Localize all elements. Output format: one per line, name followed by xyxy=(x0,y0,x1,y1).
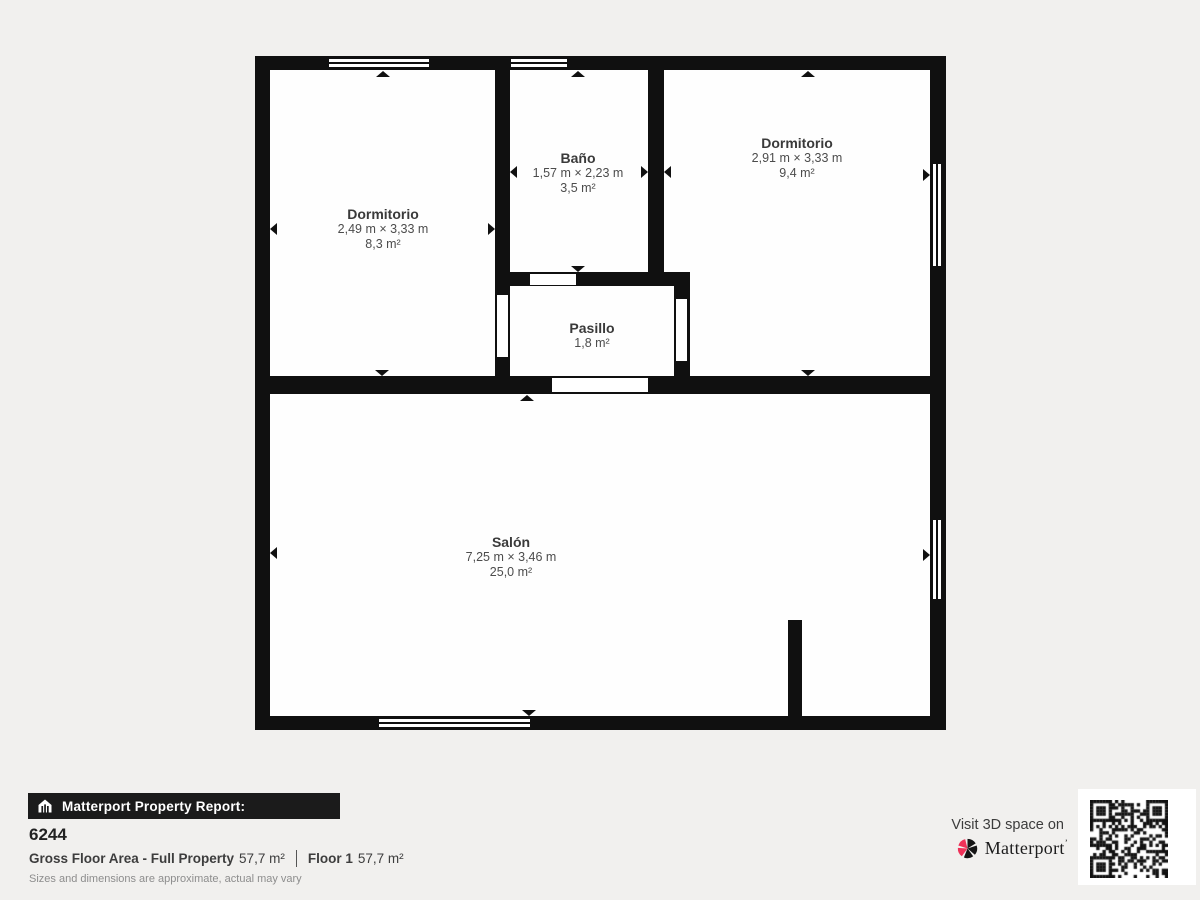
dimension-arrow-left-icon xyxy=(270,547,277,559)
window-dormitorio-left-top xyxy=(328,58,430,68)
property-id: 6244 xyxy=(29,825,67,845)
door-bano xyxy=(529,273,577,286)
room-area: 3,5 m² xyxy=(468,181,688,196)
divider xyxy=(296,850,297,867)
matterport-logo-icon xyxy=(957,838,978,859)
window-bano-top xyxy=(510,58,568,68)
dimension-arrow-down-icon xyxy=(571,266,585,272)
matterport-wordmark: Matterport’ xyxy=(985,838,1068,859)
room-label-bano: Baño 1,57 m × 2,23 m 3,5 m² xyxy=(468,150,688,195)
room-dimensions: 7,25 m × 3,46 m xyxy=(401,550,621,565)
room-area: 8,3 m² xyxy=(273,237,493,252)
room-label-salon: Salón 7,25 m × 3,46 m 25,0 m² xyxy=(401,534,621,579)
room-name: Salón xyxy=(401,534,621,550)
qr-panel xyxy=(1078,789,1196,885)
window-dormitorio-right xyxy=(932,163,942,267)
window-salon-right xyxy=(932,519,942,600)
room-name: Pasillo xyxy=(482,320,702,336)
room-label-dormitorio-left: Dormitorio 2,49 m × 3,33 m 8,3 m² xyxy=(273,206,493,251)
gross-floor-area-value: 57,7 m² xyxy=(239,851,285,866)
room-area: 1,8 m² xyxy=(482,336,702,351)
room-dimensions: 2,91 m × 3,33 m xyxy=(687,151,907,166)
dimension-arrow-up-icon xyxy=(571,71,585,77)
room-dimensions: 1,57 m × 2,23 m xyxy=(468,166,688,181)
room-name: Dormitorio xyxy=(687,135,907,151)
room-label-pasillo: Pasillo 1,8 m² xyxy=(482,320,702,351)
room-label-dormitorio-right: Dormitorio 2,91 m × 3,33 m 9,4 m² xyxy=(687,135,907,180)
room-name: Baño xyxy=(468,150,688,166)
matterport-link[interactable]: Matterport’ xyxy=(860,838,1068,859)
trademark-symbol: ’ xyxy=(1065,838,1068,848)
dimension-arrow-down-icon xyxy=(375,370,389,376)
qr-code xyxy=(1090,800,1168,878)
visit-3d-text: Visit 3D space on xyxy=(880,817,1064,833)
room-name: Dormitorio xyxy=(273,206,493,222)
window-salon-bottom xyxy=(378,718,531,728)
dimension-arrow-down-icon xyxy=(801,370,815,376)
wall-stub xyxy=(788,620,802,716)
dimension-arrow-up-icon xyxy=(801,71,815,77)
room-dormitorio-right-lower xyxy=(690,272,930,376)
floorplan: Dormitorio 2,49 m × 3,33 m 8,3 m² Baño 1… xyxy=(255,56,946,730)
dimension-arrow-down-icon xyxy=(522,710,536,716)
floor-value: 57,7 m² xyxy=(358,851,404,866)
door-salon-entry xyxy=(551,377,649,393)
room-area: 25,0 m² xyxy=(401,565,621,580)
dimension-arrow-right-icon xyxy=(923,549,930,561)
room-dimensions: 2,49 m × 3,33 m xyxy=(273,222,493,237)
dimension-arrow-up-icon xyxy=(376,71,390,77)
report-title-bar: Matterport Property Report: xyxy=(28,793,340,819)
disclaimer-text: Sizes and dimensions are approximate, ac… xyxy=(29,873,302,885)
house-icon xyxy=(37,798,53,814)
room-area: 9,4 m² xyxy=(687,166,907,181)
floor-label: Floor 1 xyxy=(308,851,353,866)
floor-area-summary: Gross Floor Area - Full Property 57,7 m²… xyxy=(29,850,404,867)
report-bar-label: Matterport Property Report: xyxy=(62,799,245,814)
dimension-arrow-up-icon xyxy=(520,395,534,401)
dimension-arrow-right-icon xyxy=(923,169,930,181)
gross-floor-area-label: Gross Floor Area - Full Property xyxy=(29,851,234,866)
